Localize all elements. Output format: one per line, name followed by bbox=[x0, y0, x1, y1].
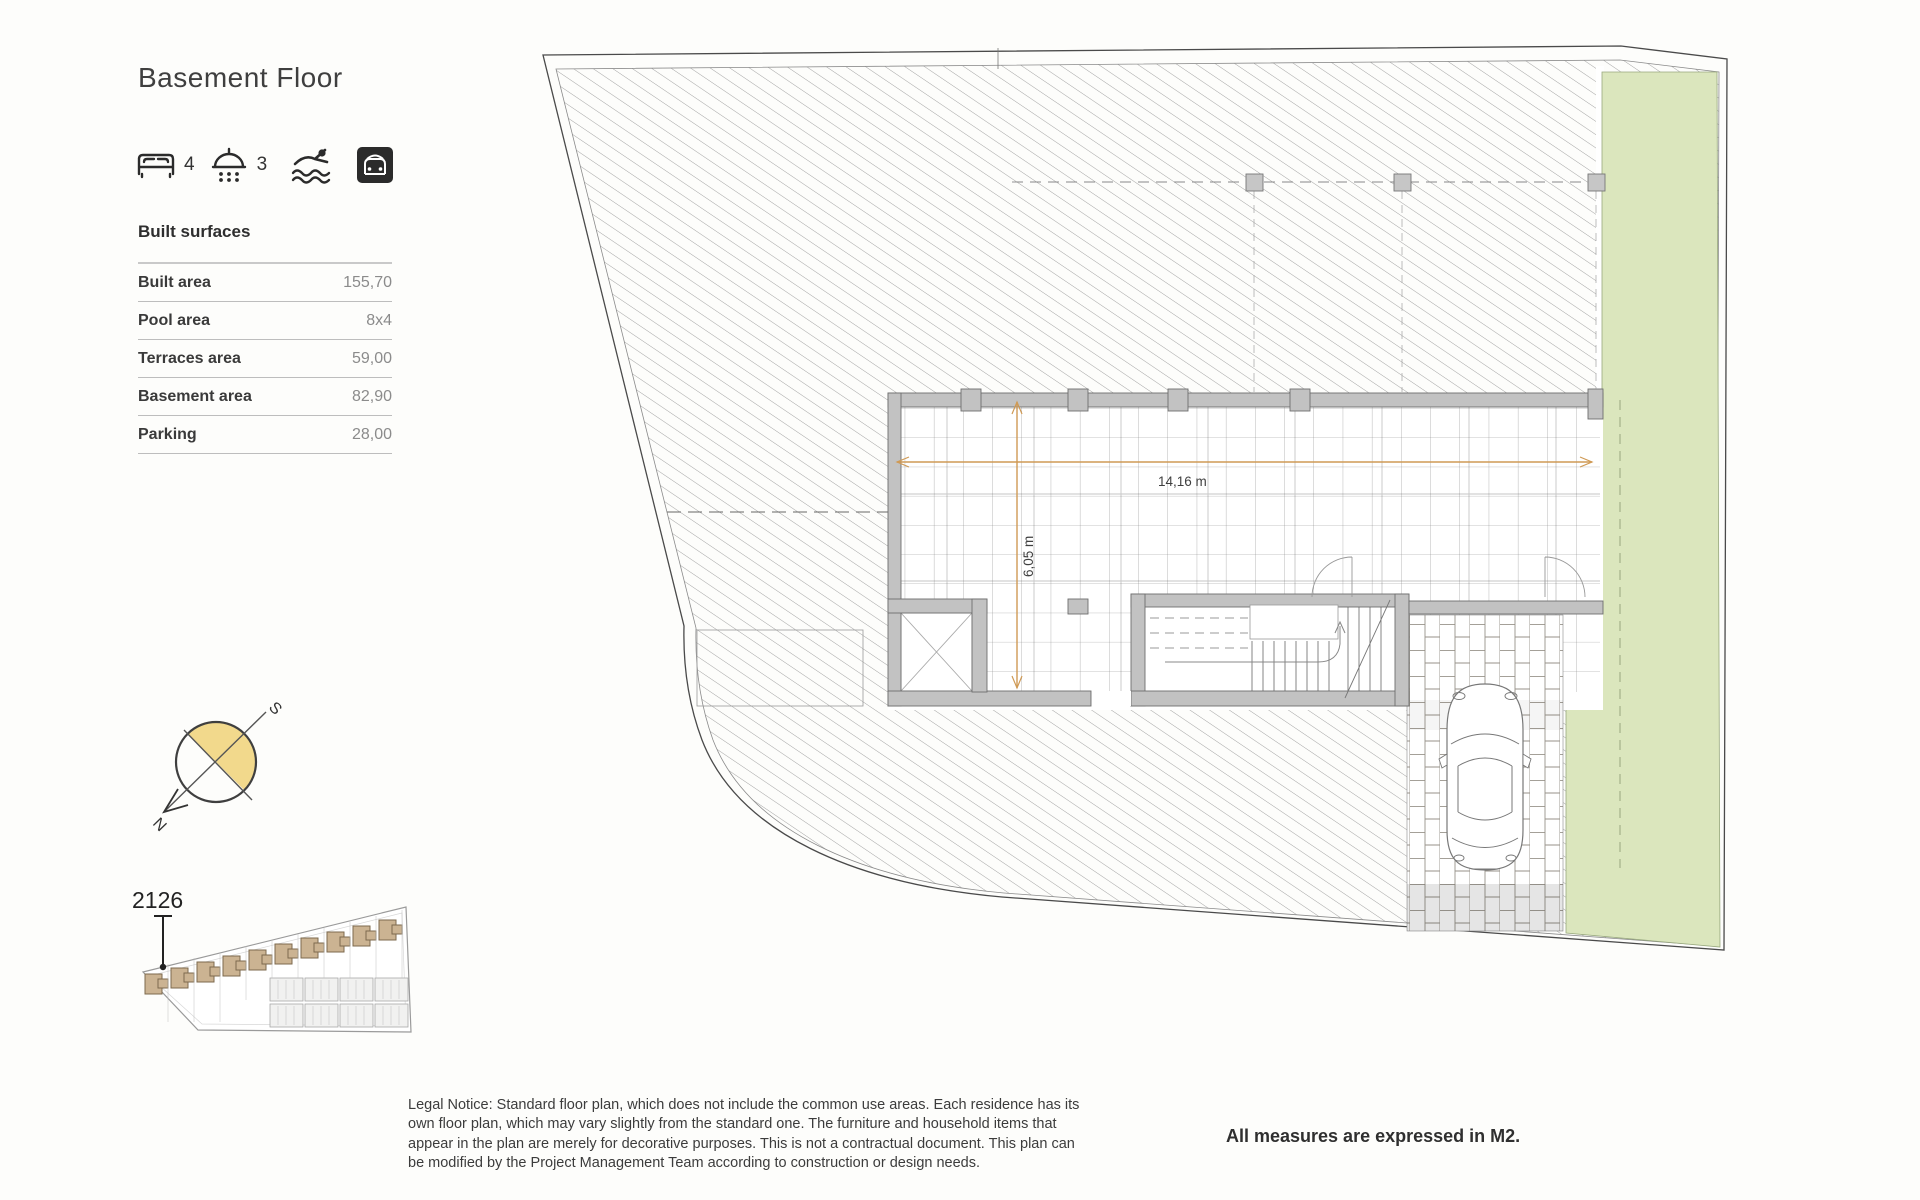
bed-icon bbox=[136, 148, 176, 182]
bedrooms-count: 4 bbox=[184, 154, 195, 176]
table-row: Parking 28,00 bbox=[138, 416, 392, 454]
compass-rose: S N bbox=[140, 685, 300, 845]
unit-number-label: 2126 bbox=[132, 887, 183, 913]
amenities-row: 4 3 bbox=[136, 146, 393, 184]
built-surfaces-table: Built area 155,70 Pool area 8x4 Terraces… bbox=[138, 262, 392, 454]
row-label: Terraces area bbox=[138, 350, 241, 368]
legal-line: be modified by the Project Management Te… bbox=[408, 1154, 1088, 1173]
compass-south-label: S bbox=[265, 699, 285, 718]
row-value: 59,00 bbox=[352, 350, 392, 368]
height-dimension-label: 6,05 m bbox=[1021, 536, 1036, 577]
floor-plan: 14,16 m 6,05 m bbox=[440, 30, 1740, 970]
table-row: Terraces area 59,00 bbox=[138, 340, 392, 378]
width-dimension-label: 14,16 m bbox=[1158, 474, 1207, 489]
shower-icon bbox=[209, 146, 249, 184]
row-label: Parking bbox=[138, 426, 197, 444]
compass-north-label: N bbox=[149, 815, 169, 835]
legal-line: appear in the plan are merely for decora… bbox=[408, 1135, 1088, 1154]
row-value: 28,00 bbox=[352, 426, 392, 444]
unit-pin bbox=[154, 916, 172, 964]
bathrooms-count: 3 bbox=[257, 154, 268, 176]
car bbox=[1439, 684, 1531, 870]
garage-amenity bbox=[357, 147, 393, 183]
bedrooms-amenity: 4 bbox=[136, 148, 195, 182]
legal-line: own floor plan, which may vary slightly … bbox=[408, 1115, 1088, 1134]
built-surfaces-heading: Built surfaces bbox=[138, 222, 250, 242]
row-value: 8x4 bbox=[366, 312, 392, 330]
garage-icon bbox=[357, 147, 393, 183]
row-value: 155,70 bbox=[343, 274, 392, 292]
legal-line: Legal Notice: Standard floor plan, which… bbox=[408, 1096, 1088, 1115]
measures-note: All measures are expressed in M2. bbox=[1226, 1126, 1520, 1147]
table-row: Built area 155,70 bbox=[138, 264, 392, 302]
row-value: 82,90 bbox=[352, 388, 392, 406]
row-label: Basement area bbox=[138, 388, 252, 406]
bathrooms-amenity: 3 bbox=[209, 146, 268, 184]
table-row: Pool area 8x4 bbox=[138, 302, 392, 340]
legal-notice: Legal Notice: Standard floor plan, which… bbox=[408, 1096, 1088, 1173]
page-title: Basement Floor bbox=[138, 62, 343, 94]
doorway-gap bbox=[1091, 691, 1131, 706]
row-label: Pool area bbox=[138, 312, 210, 330]
row-label: Built area bbox=[138, 274, 211, 292]
pool-amenity bbox=[289, 146, 333, 184]
table-row: Basement area 82,90 bbox=[138, 378, 392, 416]
site-key-plan: 2126 bbox=[118, 882, 462, 1052]
pool-icon bbox=[289, 146, 333, 184]
